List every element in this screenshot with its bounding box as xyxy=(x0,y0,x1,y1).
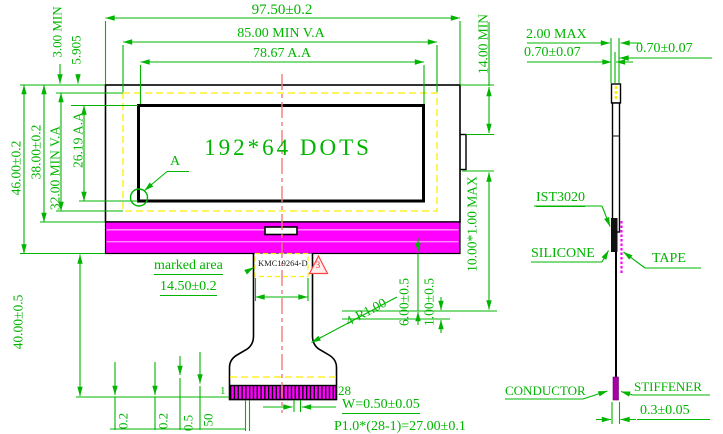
dim-side-thickness: 2.00 MAX xyxy=(526,28,587,42)
dim-glass-left: 0.70±0.07 xyxy=(524,46,581,60)
dim-viewing-area-height: 32.00 MIN V.A xyxy=(48,126,62,210)
dim-pin-pitch: P1.0*(28-1)=27.00±0.1 xyxy=(334,420,466,434)
dim-bottom-3: 0.5 xyxy=(182,415,195,431)
dim-active-area-height: 26.19 A.A xyxy=(71,112,85,168)
dim-right-ledge: 14.00 MIN xyxy=(476,14,490,74)
dim-pin-width: W=0.50±0.05 xyxy=(342,398,420,414)
dim-bottom-1: 0.2 xyxy=(117,413,130,429)
dim-overall-height: 46.00±0.2 xyxy=(9,141,23,196)
marked-area-label: marked area xyxy=(154,259,223,275)
pin-1-label: 1 xyxy=(220,386,226,397)
dim-module-height: 38.00±0.2 xyxy=(29,125,43,180)
dim-marked-area-width: 14.50±0.2 xyxy=(160,280,217,296)
dim-stiffener-thickness: 0.3±0.05 xyxy=(640,404,690,418)
detail-a-callout: A xyxy=(170,155,180,169)
side-view-outline xyxy=(611,84,622,400)
dim-fpc-offset-2: 1.00±0.5 xyxy=(422,278,436,326)
dim-fpc-bend-max: 10.00*1.00 MAX xyxy=(465,176,479,272)
tape-label: TAPE xyxy=(652,252,686,266)
ic-label: IST3020 xyxy=(536,191,585,207)
dim-viewing-area-width: 85.00 MIN V.A xyxy=(237,27,324,41)
dim-fpc-offset-1: 6.00±0.5 xyxy=(397,278,411,326)
front-view-outline xyxy=(106,85,467,400)
dim-tail-length: 40.00±0.5 xyxy=(11,295,25,350)
side-driver-ic xyxy=(611,218,618,252)
silicone-label: SILICONE xyxy=(531,247,595,261)
display-dots-text: 192*64 DOTS xyxy=(204,136,372,159)
part-number-text: KMC19264-D xyxy=(258,259,308,268)
connector-pins xyxy=(230,386,336,400)
conductor-label: CONDUCTOR xyxy=(505,384,586,397)
dim-top-aa-offset: 5.905 xyxy=(70,35,83,64)
dim-top-margin: 3.00 MIN xyxy=(51,6,64,57)
revision-number: 3 xyxy=(316,262,321,272)
drawing-linework xyxy=(0,0,723,434)
side-glass xyxy=(613,103,620,232)
dim-bottom-4: 50 xyxy=(202,414,215,427)
dim-bottom-2: 0.2 xyxy=(157,413,170,429)
lcd-module-technical-drawing: 97.50±0.2 85.00 MIN V.A 78.67 A.A 192*64… xyxy=(0,0,723,434)
bezel-slot xyxy=(265,227,297,235)
dim-active-area-width: 78.67 A.A xyxy=(253,47,311,61)
pin-28-label: 28 xyxy=(338,384,351,397)
dim-overall-width: 97.50±0.2 xyxy=(252,3,313,18)
side-stiffener xyxy=(613,377,619,400)
stiffener-label: STIFFENER xyxy=(634,380,702,393)
dim-glass-right: 0.70±0.07 xyxy=(636,42,693,56)
